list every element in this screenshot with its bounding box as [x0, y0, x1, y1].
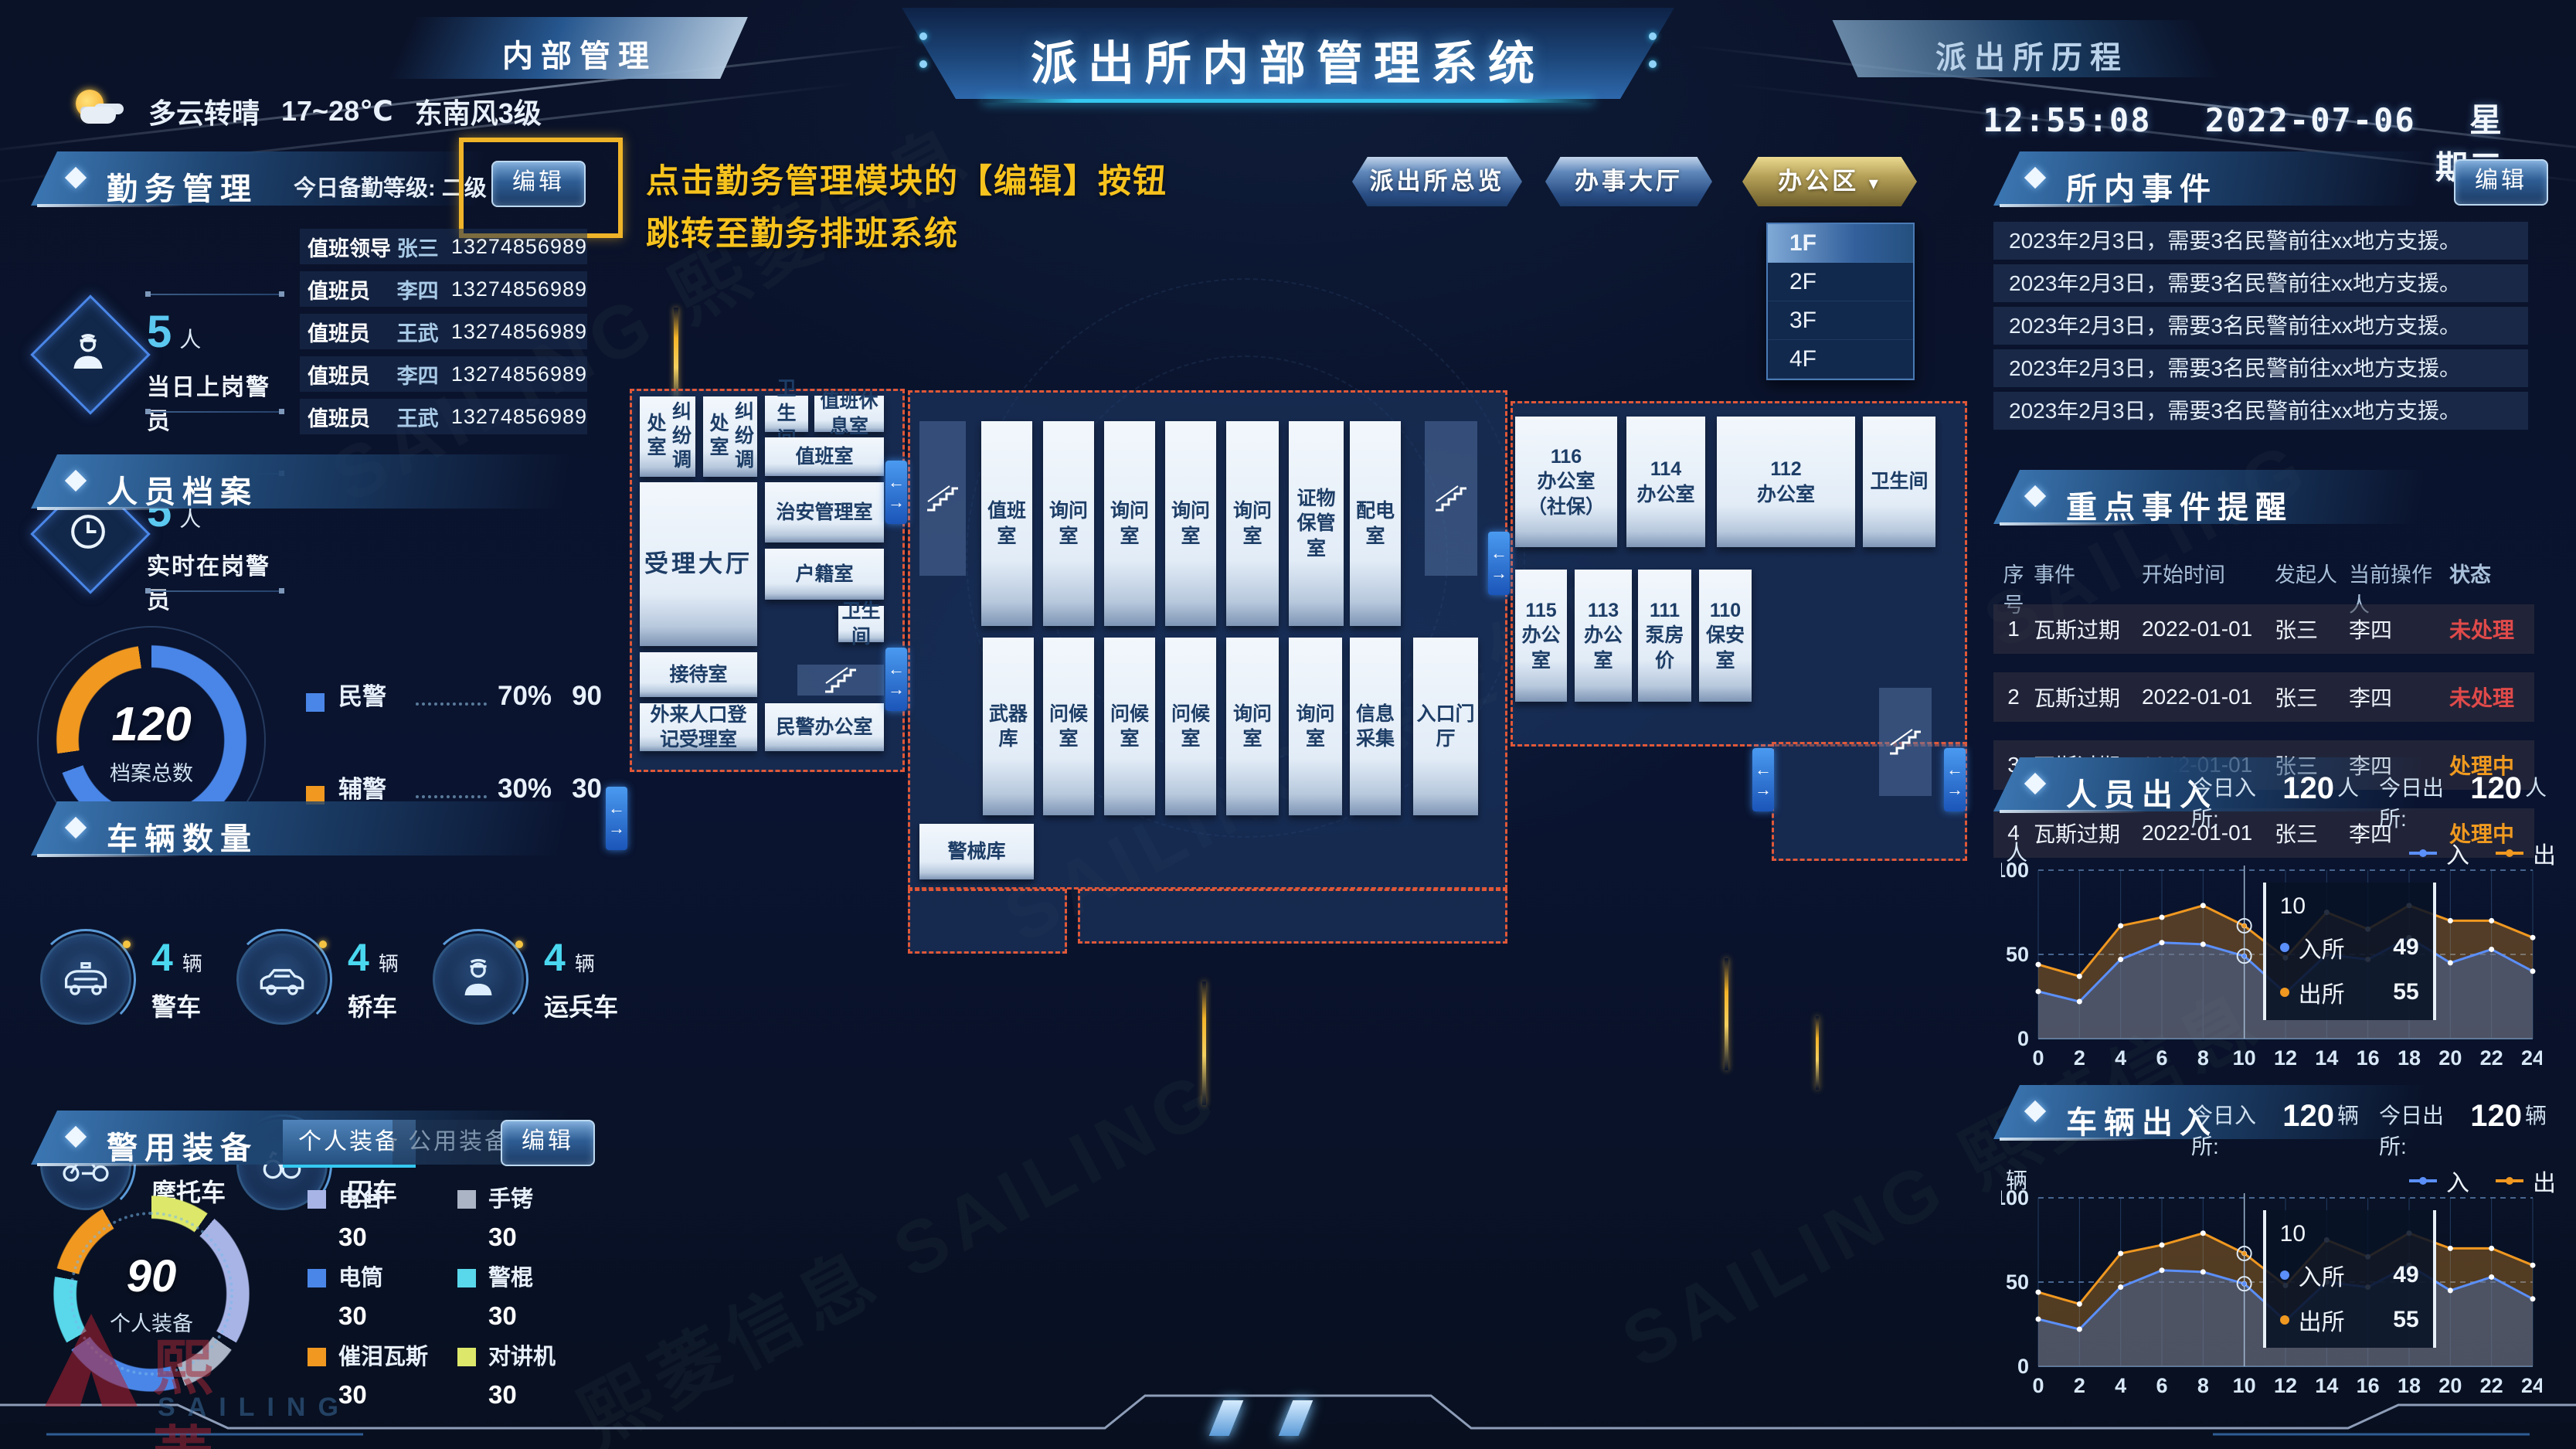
room-label: 配电室 [1350, 421, 1401, 626]
room-label: 武器库 [983, 638, 1034, 815]
weather-temp: 17~28℃ [281, 95, 393, 128]
vehicle-title: 车辆数量 [107, 814, 258, 859]
personnel-title: 人员档案 [107, 467, 258, 512]
room-label: 证物保管室 [1289, 421, 1344, 626]
banner-dot [919, 60, 927, 68]
arrow-right-icon: → [888, 681, 905, 698]
svg-text:8: 8 [2197, 1046, 2209, 1070]
plan-block [1078, 889, 1507, 944]
room-label: 问候室 [1043, 638, 1094, 815]
tooltip-x: 10 [2280, 893, 2419, 920]
equipment-legend-item: 电台 30 [308, 1181, 383, 1252]
duty-stat-label: 实时在岗警员 [147, 547, 294, 615]
nav-button-1[interactable]: 办事大厅 [1545, 157, 1712, 206]
room-label: 治安管理室 [765, 482, 884, 543]
roster-phone: 13274856989 [451, 320, 587, 344]
room-label: 111 泵房价 [1638, 570, 1691, 702]
duty-subtitle: 今日备勤等级: 二级 [294, 170, 487, 202]
room-label: 入口门厅 [1413, 638, 1478, 815]
svg-text:12: 12 [2274, 1046, 2297, 1070]
brand-latin: SAILING [158, 1393, 351, 1423]
room-label: 问候室 [1165, 638, 1216, 815]
door-marker: ←→ [885, 461, 907, 524]
arrow-left-icon: ← [1490, 545, 1507, 562]
duty-stat-value: 5人 [147, 306, 201, 358]
floor-plan: 纠纷调处室纠纷调处室卫生间值班休息室值班室受理大厅治安管理室户籍室卫生间接待室外… [609, 386, 1984, 1066]
brand-name: 熙菱信息 [153, 1320, 219, 1449]
person-flow-stats: 今日入所:120人 今日出所:120人 [2191, 771, 2547, 833]
footer-glow [1216, 1400, 1306, 1436]
room-label: 值班休息室 [814, 396, 884, 432]
dashboard: 内部管理 派出所历程 派出所内部管理系统 多云转晴 17~28℃ 东南风3级 1… [0, 0, 2576, 1449]
room-label: 警械库 [919, 824, 1034, 879]
arrow-right-icon: → [888, 494, 905, 511]
event-item: 2023年2月3日，需要3名民警前往xx地方支援。 [1993, 264, 2528, 302]
personnel-total-label: 档案总数 [51, 757, 252, 787]
room-label: 询问室 [1226, 421, 1279, 626]
event-item: 2023年2月3日，需要3名民警前往xx地方支援。 [1993, 392, 2528, 430]
room-label: 114 办公室 [1626, 417, 1705, 547]
svg-text:16: 16 [2357, 1046, 2380, 1070]
room-label: 询问室 [1289, 638, 1342, 815]
vehicle-count: 4辆 [544, 935, 618, 980]
svg-text:0: 0 [2017, 1355, 2029, 1378]
room-label: 询问室 [1043, 421, 1094, 626]
roster-name: 王武 [397, 317, 451, 347]
legend-color [306, 693, 325, 712]
banner-dot [919, 32, 927, 40]
tooltip-x: 10 [2280, 1221, 2419, 1247]
room-label: 113 办公室 [1575, 570, 1632, 702]
police-car-icon [42, 936, 129, 1022]
arrow-right-icon: → [1755, 781, 1772, 798]
chevron-down-icon: ▾ [1869, 173, 1881, 194]
svg-text:18: 18 [2398, 1046, 2421, 1070]
floor-option-3F[interactable]: 3F [1768, 301, 1913, 340]
personnel-legend-item: 民警 70%90 [306, 677, 602, 712]
room-label: 卫生间 [838, 606, 884, 642]
person-flow-chart: 024681012141618202224050100 10 入所49 出所55 [2001, 856, 2542, 1082]
events-edit-button[interactable]: 编辑 [2454, 159, 2548, 206]
room-label: 纠纷调处室 [640, 396, 695, 477]
room-label: 询问室 [1165, 421, 1216, 626]
svg-text:50: 50 [2006, 943, 2029, 966]
room-label: 询问室 [1104, 421, 1155, 626]
event-item: 2023年2月3日，需要3名民警前往xx地方支援。 [1993, 349, 2528, 387]
svg-text:4: 4 [2115, 1046, 2126, 1070]
troop-carrier-icon [435, 936, 522, 1022]
room-label: 接待室 [640, 652, 757, 697]
duty-roster-row: 值班员 王武 13274856989 [300, 399, 587, 434]
door-marker: ←→ [885, 648, 907, 711]
clock-time: 12:55:08 [1983, 101, 2151, 139]
alert-status: 未处理 [2449, 682, 2527, 713]
duty-title: 勤务管理 [107, 164, 258, 209]
room-label: 信息采集 [1350, 638, 1401, 815]
roster-phone: 13274856989 [451, 277, 587, 301]
nav-button-0[interactable]: 派出所总览 [1352, 157, 1522, 206]
arrow-right-icon: → [1946, 781, 1963, 798]
svg-text:2: 2 [2074, 1046, 2085, 1070]
event-item: 2023年2月3日，需要3名民警前往xx地方支援。 [1993, 307, 2528, 345]
arrow-right-icon: → [1490, 565, 1507, 582]
svg-text:100: 100 [2001, 859, 2029, 882]
svg-text:22: 22 [2480, 1046, 2503, 1070]
duty-stat-label: 当日上岗警员 [147, 368, 294, 436]
room-label: 民警办公室 [765, 703, 884, 751]
events-title: 所内事件 [2066, 164, 2217, 209]
roster-role: 值班员 [300, 402, 397, 432]
roster-name: 李四 [397, 359, 451, 389]
stairs-icon [797, 665, 884, 696]
room-label: 110 保安室 [1699, 570, 1752, 702]
floor-option-2F[interactable]: 2F [1768, 263, 1913, 301]
vehicle-label: 运兵车 [544, 988, 618, 1023]
room-label: 询问室 [1226, 638, 1279, 815]
equipment-edit-button[interactable]: 编辑 [501, 1120, 595, 1166]
vehicle-label: 轿车 [348, 988, 399, 1023]
arrow-left-icon: ← [888, 661, 905, 678]
roster-name: 李四 [397, 274, 451, 304]
svg-text:50: 50 [2006, 1270, 2029, 1294]
svg-text:20: 20 [2438, 1046, 2462, 1070]
legend-color [308, 1269, 326, 1287]
vehicle-item: 4辆 警车 [40, 934, 202, 1025]
roster-role: 值班员 [300, 359, 397, 389]
room-label: 卫生间 [1863, 417, 1935, 547]
duty-roster-row: 值班员 王武 13274856989 [300, 314, 587, 349]
roster-name: 张三 [397, 232, 451, 262]
room-label: 116 办公室 （社保） [1515, 417, 1617, 547]
event-item: 2023年2月3日，需要3名民警前往xx地方支援。 [1993, 222, 2528, 260]
stairs-icon [919, 421, 966, 576]
duty-edit-button[interactable]: 编辑 [491, 161, 586, 207]
alert-row: 1瓦斯过期2022-01-01 张三李四 未处理 [1993, 604, 2534, 654]
annotation-line1: 点击勤务管理模块的【编辑】按钮 [646, 155, 1167, 202]
equipment-title: 警用装备 [107, 1123, 258, 1168]
sedan-icon [239, 936, 325, 1022]
vehicle-count: 4辆 [151, 935, 202, 980]
legend-color [457, 1348, 476, 1366]
alert-status: 未处理 [2449, 614, 2527, 645]
room-label: 卫生间 [765, 396, 808, 432]
plan-block [908, 889, 1067, 954]
chart-tooltip: 10 入所49 出所55 [2263, 883, 2436, 1020]
vehicle-label: 警车 [151, 988, 202, 1023]
room-label: 户籍室 [765, 549, 884, 600]
arrow-left-icon: ← [1755, 761, 1772, 778]
legend-color [308, 1190, 326, 1209]
personnel-legend-item: 辅警 30%30 [306, 770, 602, 804]
equipment-legend-item: 手铐 30 [457, 1181, 533, 1252]
room-label: 112 办公室 [1717, 417, 1855, 547]
arrow-left-icon: ← [888, 474, 905, 491]
roster-phone: 13274856989 [451, 235, 587, 259]
equipment-total: 90 [48, 1250, 255, 1302]
floor-option-1F[interactable]: 1F [1768, 224, 1913, 263]
roster-role: 值班员 [300, 317, 397, 347]
banner-dot [1649, 32, 1657, 40]
nav-button-2[interactable]: 办公区 ▾ [1742, 157, 1917, 206]
clock-date: 2022-07-06 [2205, 101, 2416, 139]
room-label: 问候室 [1104, 638, 1155, 815]
svg-text:24: 24 [2521, 1046, 2542, 1070]
tab-internal-management[interactable]: 内部管理 [433, 31, 726, 76]
svg-text:0: 0 [2017, 1027, 2029, 1050]
plan-block [1772, 742, 1967, 861]
svg-text:100: 100 [2001, 1186, 2029, 1209]
weather-wind: 东南风3级 [415, 91, 542, 131]
clock-icon [66, 510, 110, 557]
roster-phone: 13274856989 [451, 405, 587, 429]
roster-role: 值班员 [300, 274, 397, 304]
equipment-total-label: 个人装备 [48, 1307, 255, 1337]
personnel-total: 120 [51, 697, 252, 752]
room-label: 值班室 [981, 421, 1032, 626]
duty-roster-row: 值班员 李四 13274856989 [300, 356, 587, 392]
page-title: 派出所内部管理系统 [902, 26, 1674, 94]
roster-name: 王武 [397, 402, 451, 432]
arrow-left-icon: ← [608, 800, 625, 817]
door-marker: ←→ [1752, 748, 1774, 811]
door-marker: ←→ [606, 787, 627, 850]
alerts-title: 重点事件提醒 [2066, 482, 2293, 527]
duty-roster-row: 值班领导 张三 13274856989 [300, 229, 587, 264]
room-label: 纠纷调处室 [703, 396, 757, 477]
stairs-icon [1879, 688, 1932, 796]
vehicle-count: 4辆 [348, 935, 399, 980]
svg-text:14: 14 [2315, 1046, 2338, 1070]
vehicle-flow-chart: 024681012141618202224050100 10 入所49 出所55 [2001, 1184, 2542, 1410]
legend-color [308, 1348, 326, 1366]
weather-condition: 多云转晴 [148, 91, 260, 131]
legend-color [457, 1269, 476, 1287]
room-label: 外来人口登记受理室 [640, 703, 757, 751]
duty-roster-row: 值班员 李四 13274856989 [300, 271, 587, 307]
room-label: 值班室 [765, 437, 884, 476]
door-marker: ←→ [1488, 532, 1510, 595]
svg-text:0: 0 [2032, 1046, 2044, 1070]
legend-color [457, 1190, 476, 1209]
equipment-legend-item: 警棍 30 [457, 1260, 533, 1331]
room-label: 受理大厅 [640, 482, 757, 646]
weather-icon [71, 90, 127, 133]
duty-stat: 5人 当日上岗警员 [39, 294, 294, 425]
weather-bar: 多云转晴 17~28℃ 东南风3级 [71, 87, 542, 136]
banner-dot [1649, 60, 1657, 68]
title-underline [983, 99, 1593, 103]
equipment-legend-item: 电筒 30 [308, 1260, 383, 1331]
roster-phone: 13274856989 [451, 362, 587, 386]
room-label: 115 办公室 [1515, 570, 1567, 702]
floor-option-4F[interactable]: 4F [1768, 340, 1913, 379]
officer-icon [66, 331, 110, 378]
chart-tooltip: 10 入所49 出所55 [2263, 1210, 2436, 1348]
arrow-left-icon: ← [1946, 761, 1963, 778]
svg-text:10: 10 [2233, 1046, 2256, 1070]
arrow-right-icon: → [608, 820, 625, 837]
alert-row: 2瓦斯过期2022-01-01 张三李四 未处理 [1993, 672, 2534, 722]
annotation-line2: 跳转至勤务排班系统 [646, 207, 959, 255]
vehicle-flow-stats: 今日入所:120辆 今日出所:120辆 [2191, 1099, 2547, 1161]
floor-dropdown: 1F2F3F4F [1766, 223, 1915, 380]
door-marker: ←→ [1944, 748, 1966, 811]
vehicle-item: 4辆 轿车 [236, 934, 399, 1025]
vehicle-item: 4辆 运兵车 [433, 934, 618, 1025]
svg-text:6: 6 [2156, 1046, 2167, 1070]
roster-role: 值班领导 [300, 232, 397, 262]
tab-station-history[interactable]: 派出所历程 [1870, 32, 2194, 77]
stairs-icon [1425, 421, 1477, 576]
